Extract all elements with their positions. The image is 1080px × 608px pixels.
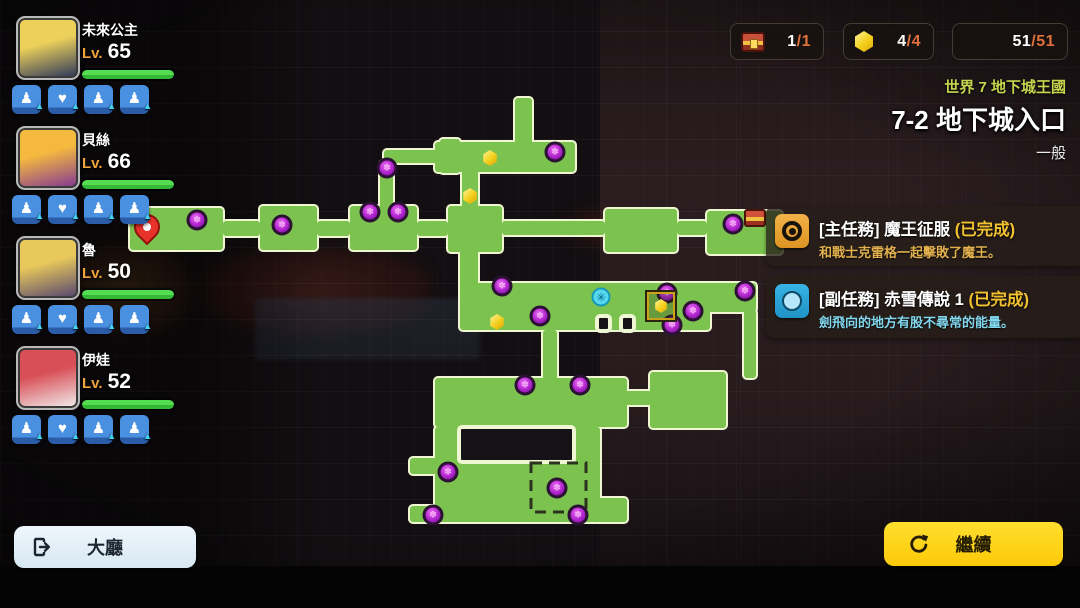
- sub-quest-row: [副任務] 赤雪傳說 1 (已完成) 劍飛向的地方有股不尋常的能量。: [766, 276, 1080, 338]
- enemy-marker: [545, 142, 566, 163]
- enemy-marker: [547, 478, 568, 499]
- enemy-marker: [423, 505, 444, 526]
- character-portrait: [16, 126, 80, 190]
- map-chest-icon: [744, 209, 766, 227]
- quest-status: (已完成): [968, 291, 1029, 309]
- bottom-black-band: [0, 566, 1080, 608]
- unit-buff-icon: ♟▲: [120, 415, 149, 444]
- enemy-marker: [530, 306, 551, 327]
- chest-total: /1: [797, 33, 811, 50]
- quest-name: 赤雪傳說 1: [884, 291, 964, 309]
- gem-counter: 4/4: [843, 23, 934, 60]
- level-label: Lv.: [82, 375, 103, 392]
- enemy-marker: [723, 214, 744, 235]
- quest-status: (已完成): [955, 221, 1016, 239]
- monster-count: 51: [1012, 33, 1031, 50]
- character-portrait: [16, 236, 80, 300]
- enemy-marker: [735, 281, 756, 302]
- level-label: Lv.: [82, 265, 103, 282]
- character-name: 伊娃: [82, 350, 110, 370]
- heart-buff-icon: ♥▲: [48, 415, 77, 444]
- enemy-marker: [568, 505, 589, 526]
- hp-bar: [82, 180, 174, 189]
- monster-counter: 51/51: [952, 23, 1068, 60]
- treasure-chest-icon: [741, 32, 765, 52]
- party-member-card: 伊娃 Lv. 52 ♟▲♥▲♟▲♟▲: [0, 344, 210, 450]
- retry-icon: [906, 531, 932, 557]
- gem-count: 4: [897, 33, 906, 50]
- logout-icon: [30, 535, 54, 559]
- hp-bar: [82, 290, 174, 299]
- heart-buff-icon: ♥▲: [48, 85, 77, 114]
- unit-buff-icon: ♟▲: [84, 415, 113, 444]
- gem-marker: [490, 314, 505, 330]
- gem-icon: [854, 31, 874, 52]
- enemy-marker: [515, 375, 536, 396]
- unit-buff-icon: ♟▲: [120, 305, 149, 334]
- enemy-marker: [377, 158, 398, 179]
- chest-counter: 1/1: [730, 23, 824, 60]
- level-label: Lv.: [82, 155, 103, 172]
- quest-type: [主任務]: [819, 221, 880, 239]
- level-value: 52: [108, 370, 131, 394]
- quest-type: [副任務]: [819, 291, 880, 309]
- unit-buff-icon: ♟▲: [12, 195, 41, 224]
- world-label: 世界 7 地下城王國: [944, 76, 1066, 97]
- unit-buff-icon: ♟▲: [84, 305, 113, 334]
- quest-name: 魔王征服: [884, 221, 950, 239]
- snowflake-marker: ✳: [592, 288, 611, 307]
- gem-total: /4: [907, 33, 921, 50]
- unit-buff-icon: ♟▲: [84, 195, 113, 224]
- character-portrait: [16, 16, 80, 80]
- level-label: Lv.: [82, 45, 103, 62]
- unit-buff-icon: ♟▲: [120, 85, 149, 114]
- heart-buff-icon: ♥▲: [48, 305, 77, 334]
- character-portrait: [16, 346, 80, 410]
- continue-button[interactable]: 繼續: [884, 522, 1063, 566]
- enemy-marker: [492, 276, 513, 297]
- stage-difficulty: 一般: [1036, 142, 1066, 163]
- chest-count: 1: [787, 33, 796, 50]
- hp-bar: [82, 400, 174, 409]
- demon-icon: [963, 31, 985, 53]
- enemy-marker: [272, 215, 293, 236]
- buff-row: ♟▲♥▲♟▲♟▲: [12, 195, 149, 224]
- lobby-button[interactable]: 大廳: [14, 526, 196, 568]
- character-name: 貝絲: [82, 130, 110, 150]
- main-quest-icon: [775, 214, 809, 248]
- unit-buff-icon: ♟▲: [12, 85, 41, 114]
- party-member-card: 貝絲 Lv. 66 ♟▲♥▲♟▲♟▲: [0, 124, 210, 230]
- party-member-card: 未來公主 Lv. 65 ♟▲♥▲♟▲♟▲: [0, 14, 210, 120]
- hp-bar: [82, 70, 174, 79]
- main-quest-row: [主任務] 魔王征服 (已完成) 和戰士克雷格一起擊敗了魔王。: [766, 206, 1080, 266]
- level-value: 65: [108, 40, 131, 64]
- sub-quest-icon: [775, 284, 809, 318]
- unit-buff-icon: ♟▲: [120, 195, 149, 224]
- buff-row: ♟▲♥▲♟▲♟▲: [12, 305, 149, 334]
- gem-marker: [483, 150, 498, 166]
- quest-description: 劍飛向的地方有股不尋常的能量。: [819, 312, 1014, 331]
- enemy-marker: [360, 202, 381, 223]
- quest-description: 和戰士克雷格一起擊敗了魔王。: [819, 242, 1001, 261]
- unit-buff-icon: ♟▲: [12, 305, 41, 334]
- enemy-marker: [438, 462, 459, 483]
- level-value: 50: [108, 260, 131, 284]
- monster-total: /51: [1031, 33, 1055, 50]
- heart-buff-icon: ♥▲: [48, 195, 77, 224]
- character-name: 未來公主: [82, 20, 138, 40]
- enemy-marker: [388, 202, 409, 223]
- gem-frame-marker: [647, 292, 675, 320]
- unit-buff-icon: ♟▲: [12, 415, 41, 444]
- enemy-marker: [683, 301, 704, 322]
- party-member-card: 魯 Lv. 50 ♟▲♥▲♟▲♟▲: [0, 234, 210, 340]
- level-value: 66: [108, 150, 131, 174]
- buff-row: ♟▲♥▲♟▲♟▲: [12, 85, 149, 114]
- buff-row: ♟▲♥▲♟▲♟▲: [12, 415, 149, 444]
- gem-marker: [463, 188, 478, 204]
- stage-title: 7-2 地下城入口: [891, 100, 1066, 137]
- character-name: 魯: [82, 240, 96, 260]
- enemy-marker: [570, 375, 591, 396]
- unit-buff-icon: ♟▲: [84, 85, 113, 114]
